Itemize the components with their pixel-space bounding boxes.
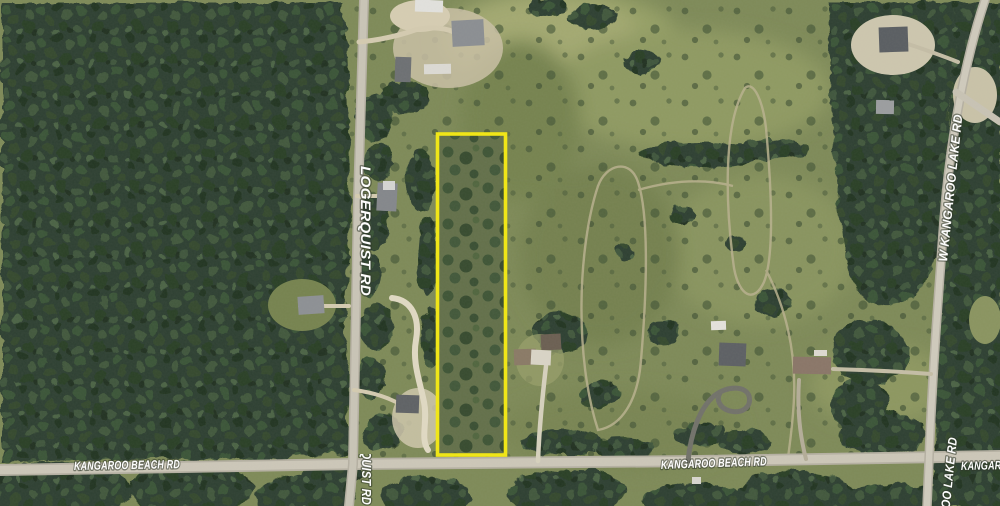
satellite-image: KANGAROO BEACH RD KANGAROO BEACH RD KANG… bbox=[0, 0, 1000, 506]
aerial-map-view: KANGAROO BEACH RD KANGAROO BEACH RD KANG… bbox=[0, 0, 1000, 506]
photo-grain-overlay bbox=[0, 0, 1000, 506]
